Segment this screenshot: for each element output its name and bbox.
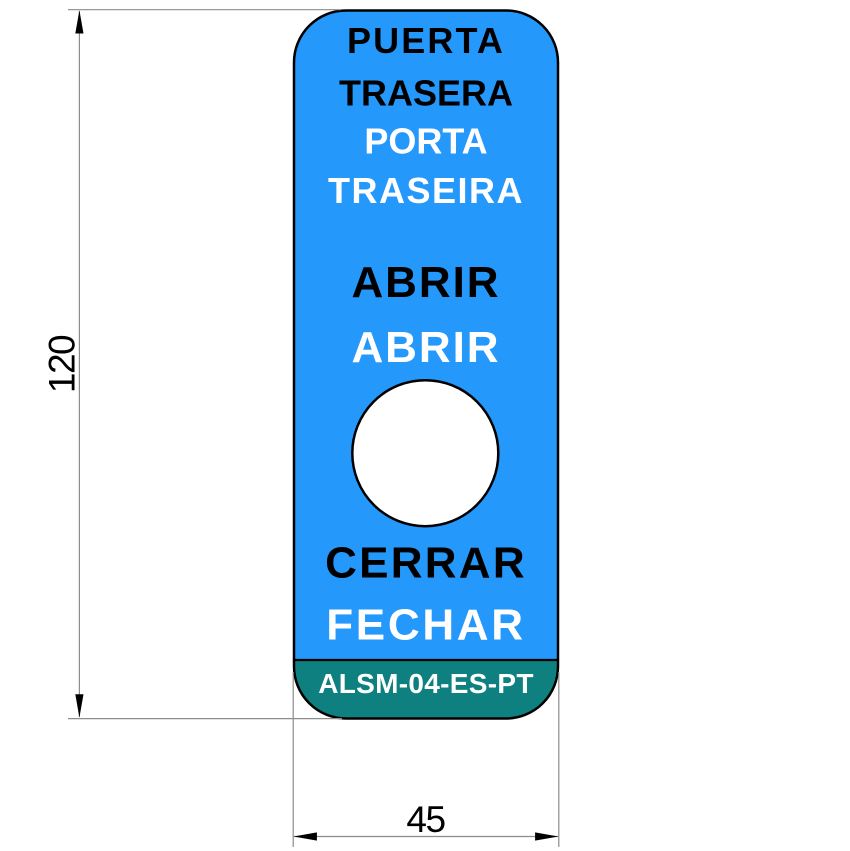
svg-text:TRASERA: TRASERA [339, 73, 513, 114]
svg-text:ABRIR: ABRIR [351, 258, 500, 307]
svg-text:45: 45 [406, 799, 445, 840]
svg-text:FECHAR: FECHAR [326, 601, 526, 650]
svg-text:TRASEIRA: TRASEIRA [328, 170, 524, 211]
svg-text:PUERTA: PUERTA [347, 20, 505, 61]
svg-text:120: 120 [42, 335, 83, 393]
svg-text:CERRAR: CERRAR [325, 538, 527, 587]
svg-text:ABRIR: ABRIR [351, 323, 500, 372]
svg-text:PORTA: PORTA [364, 121, 487, 162]
svg-text:ALSM-04-ES-PT: ALSM-04-ES-PT [318, 668, 533, 699]
